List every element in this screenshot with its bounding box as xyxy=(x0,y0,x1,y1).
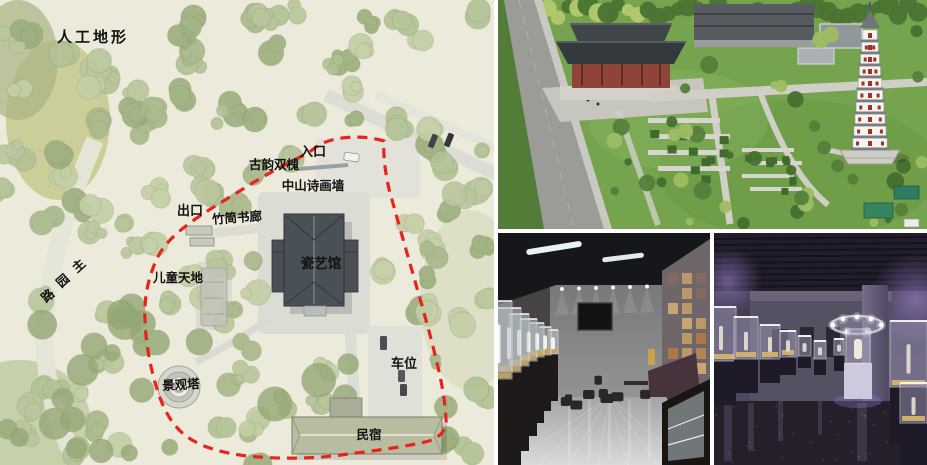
label-twin-locusts: 古韵双槐 xyxy=(249,157,300,172)
wall-tv-screen xyxy=(578,303,612,330)
label-porcelain-hall: 瓷艺馆 xyxy=(301,255,342,272)
gallery-photo-svg xyxy=(714,233,927,465)
aerial-main-hall xyxy=(556,24,686,100)
parking-lot xyxy=(368,326,422,422)
museum-gallery-photo xyxy=(714,233,927,465)
site-plan-svg: 人工地形 入口 古韵双槐 中山诗画墙 出口 竹简书廊 瓷艺馆 儿童天地 景观塔 … xyxy=(0,0,494,465)
site-plan-map: 人工地形 入口 古韵双槐 中山诗画墙 出口 竹简书廊 瓷艺馆 儿童天地 景观塔 … xyxy=(0,0,494,465)
label-poetry-wall: 中山诗画墙 xyxy=(282,178,345,193)
exhibition-room-photo xyxy=(498,233,710,465)
presentation-collage: 人工地形 入口 古韵双槐 中山诗画墙 出口 竹简书廊 瓷艺馆 儿童天地 景观塔 … xyxy=(0,0,927,465)
children-structure xyxy=(201,268,227,326)
exhibit-photo-svg xyxy=(498,233,710,465)
map-title: 人工地形 xyxy=(57,28,129,46)
aerial-photo-park xyxy=(498,0,927,229)
label-exit: 出口 xyxy=(177,203,203,219)
gold-statue xyxy=(648,349,655,365)
label-homestay: 民宿 xyxy=(356,427,381,442)
aerial-photo-svg xyxy=(498,0,927,229)
label-entrance: 入口 xyxy=(300,145,326,160)
label-landscape-tower: 景观塔 xyxy=(162,376,201,393)
label-parking: 车位 xyxy=(391,356,417,372)
label-children-area: 儿童天地 xyxy=(152,270,204,285)
